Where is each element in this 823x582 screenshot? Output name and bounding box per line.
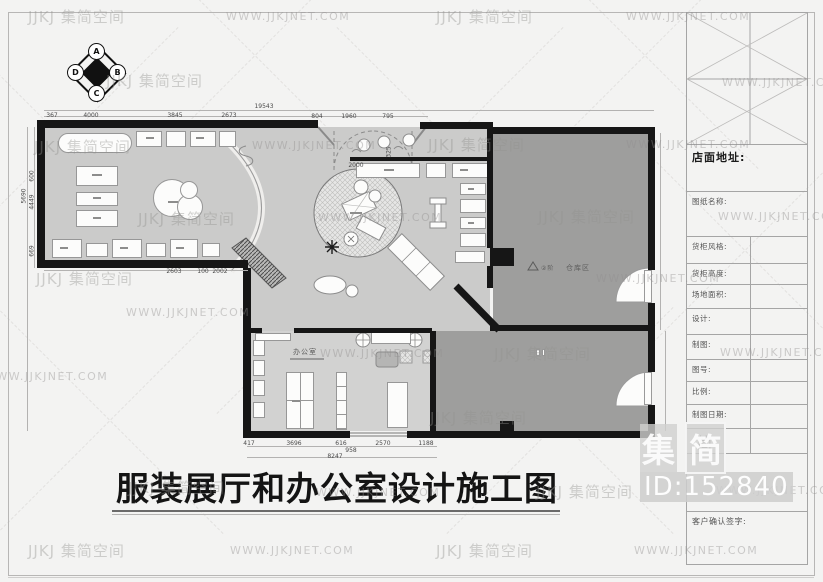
exterior-wall <box>648 127 655 270</box>
field-row-cabinet-height: 货柜高度: <box>687 263 807 284</box>
field-value <box>750 360 807 381</box>
dimension-value: 616 <box>335 440 346 447</box>
exterior-wall <box>37 260 248 268</box>
cashier-counter <box>426 163 446 178</box>
field-label: 图号: <box>692 364 711 375</box>
tiny-label <box>292 400 300 402</box>
exterior-wall <box>243 268 251 438</box>
field-label: 设计: <box>692 313 711 324</box>
exterior-wall <box>648 405 655 438</box>
exterior-wall <box>243 431 350 438</box>
title-block-logo-area <box>687 13 807 144</box>
tiny-label <box>60 247 68 249</box>
dimension-value: 367 <box>46 112 57 119</box>
display-counter <box>202 243 220 257</box>
door-leaf <box>644 270 652 303</box>
compass-letter-d: D <box>67 64 84 81</box>
office-shelf <box>253 380 265 396</box>
tiny-label <box>468 222 474 224</box>
display-table <box>76 192 118 206</box>
office-label-underline <box>290 358 324 360</box>
interior-wall <box>487 127 493 248</box>
warehouse-marker: ②阶 <box>541 263 554 272</box>
dimension-value: 1188 <box>418 440 433 447</box>
exterior-wall <box>493 127 655 134</box>
warehouse-label: 仓库区 <box>566 263 590 273</box>
dimension-value: 417 <box>243 440 254 447</box>
field-label: 店面地址: <box>692 149 745 165</box>
dimension-value: 3845 <box>167 112 182 119</box>
office-shelf <box>253 402 265 418</box>
dimension-value: 600 <box>29 170 36 181</box>
tiny-label <box>350 212 362 214</box>
dimension-value: 4449 <box>29 194 36 209</box>
field-value <box>750 309 807 334</box>
storage-item <box>536 349 540 356</box>
dimension-value: 1960 <box>341 113 356 120</box>
interior-wall <box>250 328 262 333</box>
dimension-value: 5690 <box>21 188 28 203</box>
tiny-label <box>468 188 474 190</box>
field-label: 货柜高度: <box>692 268 727 279</box>
dimension-value: 804 <box>311 113 322 120</box>
office-counter <box>255 333 291 341</box>
door-leaf <box>644 372 652 405</box>
title-block: 店面地址: 图纸名称: 货柜风格: 货柜高度: 场地面积: 设计: 制图: 图号… <box>686 12 808 565</box>
dimension-value: 3696 <box>286 440 301 447</box>
field-row-drawing-name: 图纸名称: <box>687 191 807 236</box>
field-row-site-area: 场地面积: <box>687 284 807 308</box>
field-label: 制图日期: <box>692 409 727 420</box>
exterior-wall <box>37 120 45 268</box>
office-cabinet <box>336 372 347 430</box>
office-desk <box>286 372 314 429</box>
display-counter <box>170 239 198 258</box>
field-row-drawing-no: 图号: <box>687 359 807 381</box>
tiny-label <box>176 247 184 249</box>
display-counter <box>219 131 236 147</box>
dimension-line <box>44 110 654 111</box>
wall-shelf <box>455 251 485 263</box>
tiny-label <box>120 247 128 249</box>
sheet-border-line <box>8 577 814 578</box>
office-label: 办公室 <box>293 347 317 357</box>
field-label: 客户确认签字: <box>692 516 746 527</box>
display-counter <box>86 243 108 257</box>
field-label: 场地面积: <box>692 289 727 300</box>
interior-wall <box>430 331 436 431</box>
dimension-value: 325 <box>386 146 393 157</box>
dimension-value: 4000 <box>83 112 98 119</box>
field-row-scale: 比例: <box>687 381 807 404</box>
dimension-value: 2570 <box>375 440 390 447</box>
office-counter <box>371 332 411 344</box>
dimension-value: 2000 <box>348 162 363 169</box>
office-desk <box>387 382 408 428</box>
exterior-wall <box>407 431 652 438</box>
field-value <box>750 429 807 453</box>
field-row-drafter: 制图: <box>687 334 807 359</box>
tiny-label <box>93 197 101 199</box>
tiny-label <box>196 137 204 139</box>
dimension-value: 8247 <box>327 453 342 460</box>
title-underline <box>112 510 560 512</box>
field-value <box>750 382 807 404</box>
compass-letter-a: A <box>88 43 105 60</box>
dimension-value: 958 <box>345 447 356 454</box>
drawing-sheet: A B C D <box>0 0 823 582</box>
exterior-wall <box>648 303 655 372</box>
field-value <box>750 264 807 284</box>
tiny-label <box>168 201 178 203</box>
exterior-wall <box>420 122 493 129</box>
dimension-value: 2002 <box>212 268 227 275</box>
sheet-title: 服装展厅和办公室设计施工图 <box>116 462 558 510</box>
logo-row: 简 <box>687 428 807 453</box>
interior-wall <box>294 328 432 333</box>
field-row-draft-date: 制图日期: <box>687 404 807 428</box>
brand-logo-glyph: 简 <box>697 432 712 453</box>
office-shelf <box>253 360 265 376</box>
display-counter <box>166 131 186 147</box>
interior-wall <box>490 248 514 266</box>
storage-item <box>542 349 545 356</box>
field-value <box>750 405 807 428</box>
dimension-value: 2673 <box>221 112 236 119</box>
cashier-bar <box>350 157 488 161</box>
wall-shelf <box>460 233 486 247</box>
dimension-value: 100 <box>197 268 208 275</box>
display-table <box>76 166 118 186</box>
blank-row <box>687 453 807 511</box>
tiny-label <box>92 174 102 176</box>
exterior-wall <box>37 120 318 128</box>
tiny-label <box>460 169 468 171</box>
field-value <box>750 285 807 308</box>
field-label: 制图: <box>692 339 711 350</box>
sofa <box>58 133 132 153</box>
title-underline-thin <box>112 514 560 515</box>
tiny-label <box>384 169 394 171</box>
display-counter <box>190 131 216 147</box>
dimension-value: 669 <box>29 245 36 256</box>
dimension-value: 19543 <box>254 103 273 110</box>
round-table <box>180 181 198 199</box>
dimension-line <box>660 133 661 330</box>
display-counter <box>136 131 162 147</box>
interior-wall <box>487 266 493 288</box>
tiny-label <box>146 137 154 139</box>
office-shelf <box>253 340 265 356</box>
tiny-label <box>93 217 101 219</box>
interior-wall <box>490 325 648 331</box>
field-row-store-address: 店面地址: <box>687 144 807 191</box>
field-row-client-signature: 客户确认签字: <box>687 511 807 566</box>
dimension-line <box>665 331 666 431</box>
field-label: 比例: <box>692 386 711 397</box>
field-label: 货柜风格: <box>692 241 727 252</box>
dimension-value: 795 <box>382 113 393 120</box>
compass-letter-b: B <box>109 64 126 81</box>
display-counter <box>146 243 166 257</box>
field-row-cabinet-style: 货柜风格: <box>687 236 807 263</box>
dimension-value: 2603 <box>166 268 181 275</box>
field-value <box>750 237 807 263</box>
cashier-counter <box>452 163 488 178</box>
field-label: 图纸名称: <box>692 196 727 207</box>
compass-letter-c: C <box>88 85 105 102</box>
field-value <box>750 335 807 359</box>
field-row-designer: 设计: <box>687 308 807 334</box>
wall-shelf <box>460 199 486 213</box>
orientation-compass: A B C D <box>67 43 127 103</box>
